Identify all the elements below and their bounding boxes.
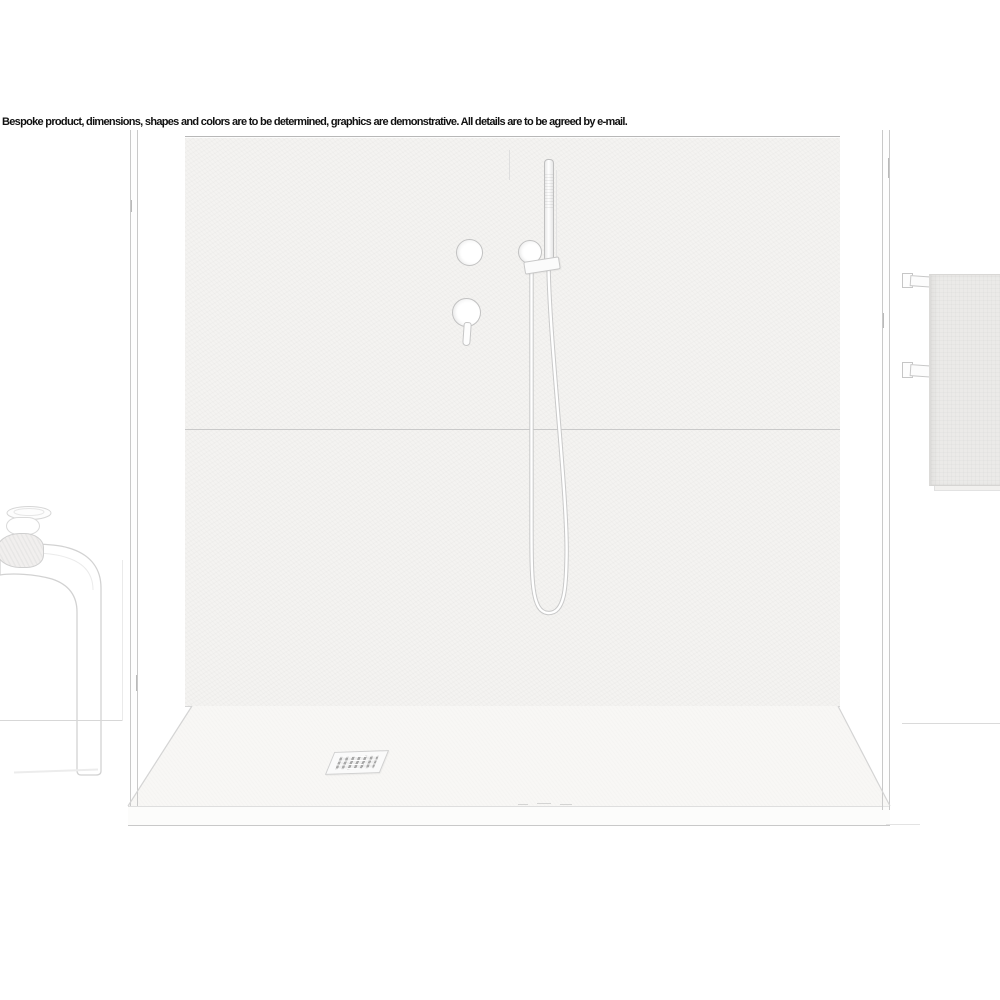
wand-spray-texture — [545, 174, 553, 208]
shower-tray-surface — [118, 706, 900, 806]
floor-line-left — [0, 720, 122, 721]
right-glass-panel — [882, 130, 890, 810]
shower-tray-front-edge — [128, 806, 890, 826]
mixer-lever — [462, 322, 472, 346]
tray-seal-mark — [537, 803, 551, 804]
product-image: Bespoke product, dimensions, shapes and … — [0, 0, 1000, 1000]
left-glass-panel — [130, 130, 138, 806]
towel — [929, 274, 1000, 486]
wand-shadow-line — [556, 170, 557, 258]
soap-dish-inner — [14, 509, 44, 516]
glass-edge-highlight — [131, 200, 132, 212]
drain-grate — [335, 755, 379, 769]
shower-back-wall — [185, 136, 840, 707]
tray-shadow — [886, 824, 920, 825]
folded-cloth — [0, 533, 44, 568]
wall-panel-seam — [185, 429, 840, 430]
stool — [0, 544, 101, 775]
glass-edge-highlight — [888, 158, 889, 178]
mixer-knob-upper — [456, 239, 483, 266]
tray-seal-mark — [560, 804, 572, 805]
glass-edge-highlight — [883, 313, 884, 328]
tray-seal-mark — [518, 804, 528, 805]
floor-line-right — [902, 723, 1000, 724]
left-wall-corner — [122, 560, 123, 721]
handshower-wand — [544, 159, 554, 264]
glass-edge-highlight — [136, 675, 137, 691]
disclaimer-text: Bespoke product, dimensions, shapes and … — [2, 116, 998, 128]
faint-sketch-line — [509, 150, 510, 180]
stool-shadow — [14, 769, 98, 774]
drain-cover — [325, 750, 389, 775]
